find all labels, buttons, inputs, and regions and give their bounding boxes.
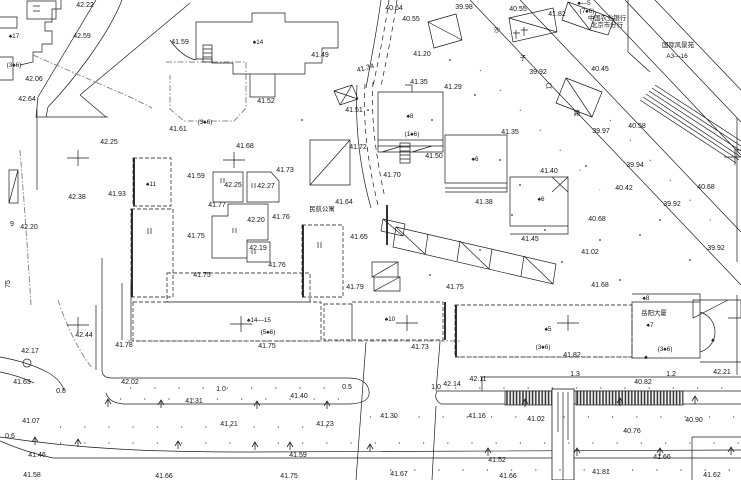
elevation-label: 41.35 [410,79,428,86]
elevation-label: 42.64 [18,96,36,103]
elevation-label: 41.64 [335,199,353,206]
elevation-label: 41.68 [236,143,254,150]
building-interior-ticks [148,228,321,248]
elevation-label: 42.06 [25,76,43,83]
elevation-label: 41.61 [169,126,187,133]
survey-dot [659,219,661,221]
elevation-label: 41.34 [356,63,375,74]
tree-symbol [692,396,698,404]
elevation-label: 41.62 [703,472,721,479]
elevation-label: 75 [5,280,12,288]
elevation-label: 41.75 [193,272,211,279]
tree-symbol [728,447,734,455]
elevation-label: 40.68 [697,184,715,191]
site-plan-drawing: 沙子口路地区地形图 site plan 42.2242 [0,0,741,480]
elevation-label: 41.73 [411,344,429,351]
text-label: 国际风景苑 [662,40,695,49]
elevation-label: 41.16 [468,413,486,420]
elevation-label: 9 [10,221,14,228]
survey-dot [561,261,563,263]
diagonal-road-lines [470,0,741,285]
survey-dot [301,119,303,121]
elevation-label: 41.52 [488,457,506,464]
survey-cross-marker [557,315,579,331]
elevation-label: 41.02 [527,416,545,423]
elevation-label: 40.42 [615,185,633,192]
building-tag: (3♠6) [658,346,673,353]
elevation-label: 41.20 [413,51,431,58]
elevation-label: 41.70 [383,172,401,179]
elevation-label: 41.40 [290,393,308,400]
elevation-label: 41.79 [346,284,364,291]
survey-dot [639,234,641,236]
elevation-label: 1.3 [570,371,580,378]
building-tag: ♠14—15 [247,317,271,324]
building-wall-thick-edges [132,158,456,357]
tree-symbol [574,448,580,456]
elevation-label: 41.49 [311,52,329,59]
text-label: A3—16 [666,53,688,60]
survey-dot [519,184,521,186]
tree-symbol [32,437,38,445]
tree-symbol [287,442,293,450]
elevation-label: 41.68 [591,282,609,289]
zebra-crossing-west [505,391,552,405]
road-south-edges [0,342,741,480]
elevation-label: 42.25 [224,182,242,189]
ns-road-curbs [357,0,381,208]
elevation-label: 41.75 [280,473,298,480]
survey-dot [431,119,433,121]
building-tag: ♠8 [407,113,414,120]
elevation-label: 41.66 [499,473,517,480]
elevation-label: 41.67 [390,471,408,478]
text-label: 民航公寓 [309,204,335,213]
building-tag: (1♠6) [405,131,420,138]
survey-dot [449,59,451,61]
elevation-label: 0.8 [56,388,66,395]
elevation-label: 41.59 [187,173,205,180]
garage-band [372,219,556,291]
survey-dot [689,259,691,261]
elevation-label: 41.75 [187,233,205,240]
survey-dot [511,214,513,216]
tree-symbol [254,401,260,409]
elevation-label: 41.72 [349,144,367,151]
elevation-label: 41.73 [276,167,294,174]
building-tag: ♠5 [545,326,552,333]
survey-cross-marker [223,152,245,168]
elevation-label: 41.51 [345,107,363,114]
tower-block [632,294,741,375]
elevation-label: 41.02 [581,249,599,256]
elevation-label: 39.97 [592,128,610,135]
elevation-label: 41.76 [272,214,290,221]
survey-dot [429,274,431,276]
elevation-label: 41.75 [446,284,464,291]
elevation-label: 40.55 [509,6,527,13]
elevation-label: 39.94 [626,162,644,169]
elevation-label: 42.20 [247,217,265,224]
survey-dot [499,159,501,161]
elevation-label: 42.59 [73,33,91,40]
building-tag: ♠14 [253,39,264,46]
elevation-label: 39.92 [663,201,681,208]
elevation-label: 42.17 [21,348,39,355]
elevation-label: 41.59 [171,39,189,46]
elevation-label: 40.58 [628,123,646,130]
elevation-label: 41.81 [592,469,610,476]
survey-dot [619,279,621,281]
building-tag: (7♠6) [580,8,595,15]
elevation-label: 41.07 [22,418,40,425]
bank-corner-structures [513,0,741,262]
elevation-label: 42.19 [249,245,267,252]
elevation-label: 41.76 [268,262,286,269]
elevation-label: 39.92 [707,245,725,252]
elevation-label: 42.20 [20,224,38,231]
elevation-label: 0.6 [5,433,15,440]
building-tag: (3♠6) [536,344,551,351]
elevation-label: 41.21 [220,421,238,428]
elevation-label: 41.38 [475,199,493,206]
elevation-label: 40.55 [402,16,420,23]
survey-dot [585,165,587,167]
elevation-label: 41.46 [28,452,46,459]
elevation-label: 41.58 [23,472,41,479]
building-tag: (3♠6) [7,62,22,69]
tree-symbol [252,442,258,450]
elevation-label: 41.66 [155,473,173,480]
elevation-label: 42.02 [121,379,139,386]
elevation-label: 1.0 [216,386,226,393]
elevation-label: 42.44 [75,332,93,339]
sidewalk-strip-west [0,258,369,404]
text-label: 北京市分行 [591,20,624,29]
elevation-label: 41.29 [444,84,462,91]
elevation-label: 41.82 [548,11,566,18]
elevation-label: 41.78 [115,342,133,349]
text-label: 子 [520,54,527,62]
elevation-label: 41.40 [540,168,558,175]
elevation-label: 41.59 [289,452,307,459]
building-tag: ♠ [644,354,648,361]
topleft-diagonal-parcels [36,0,190,117]
survey-cross-marker [67,150,89,166]
tree-symbol [485,448,491,456]
building-tag: ♠—5 [577,0,591,7]
elevation-label: 41.82 [563,352,581,359]
elevation-label: 39.98 [455,4,473,11]
elevation-label: 41.31 [185,398,203,405]
survey-cross-marker [396,315,418,331]
elevation-label: 41.66 [653,454,671,461]
building-tag: ♠10 [385,316,396,323]
building-tag: ♠8 [643,295,650,302]
labels-layer: 42.2242.5941.5942.0642.6441.4941.5241.51… [5,0,731,480]
building-tag: ♠6 [538,196,545,203]
elevation-label: 42.14 [443,381,461,388]
building-tag: ♠7 [647,322,654,329]
building-tag: (5♠6) [261,329,276,336]
stair-symbols [170,40,410,163]
elevation-label: 40.90 [685,417,703,424]
cad-site-plan-canvas: 沙子口路地区地形图 site plan 42.2242 [0,0,741,480]
elevation-label: 42.25 [100,139,118,146]
tree-symbol [175,441,181,449]
survey-cross-marker [67,317,89,333]
tree-symbol [158,400,164,408]
tree-symbol [367,444,373,452]
text-label: 岳阳大厦 [641,308,667,317]
elevation-label: 41.50 [425,153,443,160]
building-tag: ♠ [711,337,715,344]
building-tag: ♠11 [146,181,156,188]
survey-dot [544,229,546,231]
road-kiosk [334,85,358,105]
elevation-label: 39.92 [529,69,547,76]
elevation-label: 42.27 [257,183,275,190]
elevation-label: 1.2 [666,371,676,378]
building-tag: ♠17 [9,33,20,40]
elevation-label: 0.5 [342,384,352,391]
elevation-label: 40.68 [588,216,606,223]
survey-dot [367,109,369,111]
text-label: 沙 [494,27,501,34]
elevation-label: 41.65 [350,234,368,241]
elevation-label: 40.64 [385,5,403,12]
elevation-label: 41.23 [316,421,334,428]
survey-point-diagonals [480,70,720,230]
survey-dot [599,239,601,241]
tree-symbol [324,401,330,409]
elevation-label: 41.52 [257,98,275,105]
building-tag: ♠6 [472,156,479,163]
elevation-label: 1.0 [431,384,441,391]
elevation-label: 41.63 [13,379,31,386]
elevation-label: 40.82 [634,379,652,386]
elevation-label: 41.93 [108,191,126,198]
elevation-label: 42.11 [470,376,487,383]
elevation-label: 41.75 [258,343,276,350]
elevation-label: 40.45 [591,66,609,73]
zebra-crossing-east [576,391,683,405]
elevation-label: 42.22 [76,2,94,9]
building-tag: (3♠6) [198,119,213,126]
elevation-label: 41.77 [208,202,226,209]
text-label: 口 [546,82,552,90]
tree-symbol [105,399,111,407]
elevation-label: 41.35 [501,129,519,136]
elevation-label: 41.45 [521,236,539,243]
text-label: 路 [574,108,581,117]
elevation-label: 42.21 [713,369,731,376]
roadside-kiosks [428,8,602,117]
text-label: 中国农业银行 [588,13,627,22]
elevation-label: 40.76 [623,428,641,435]
survey-dot [479,249,481,251]
elevation-label: 41.30 [380,413,398,420]
survey-dot [474,94,476,96]
elevation-label: 42.38 [68,194,86,201]
